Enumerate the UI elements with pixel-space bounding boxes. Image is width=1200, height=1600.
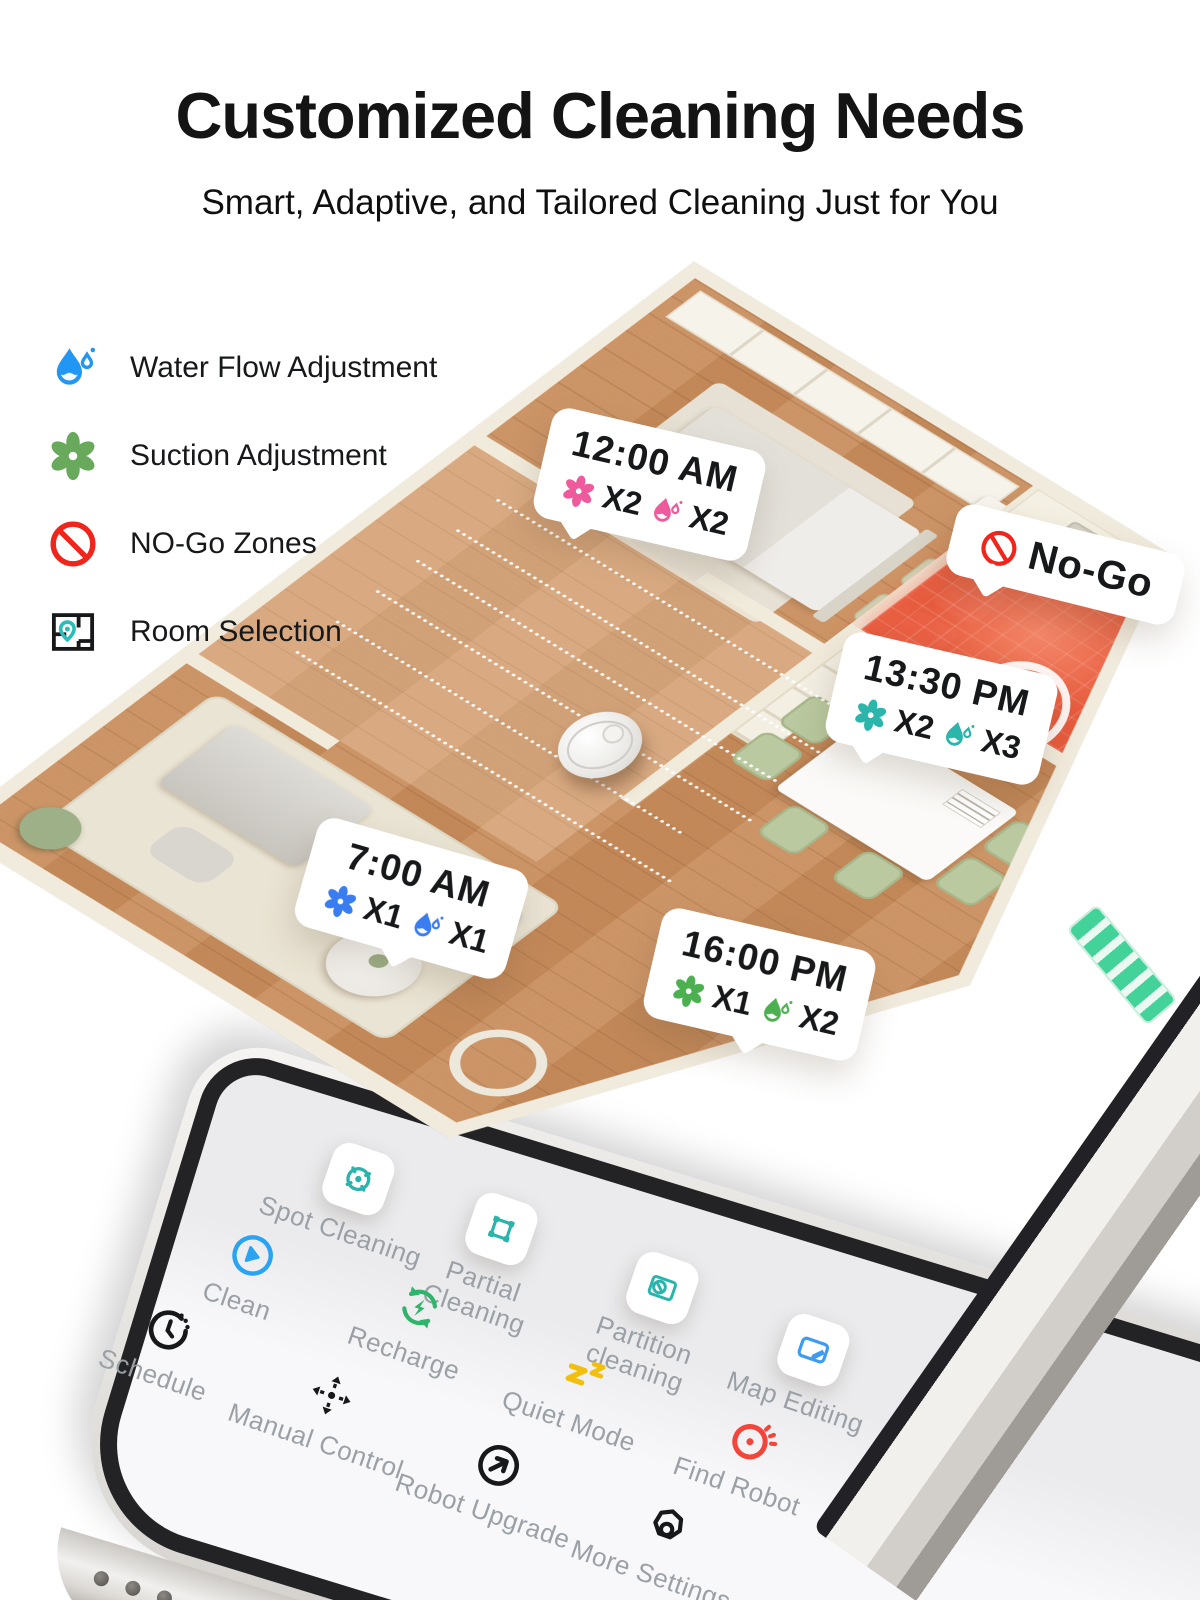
battery-indicator-strip bbox=[1066, 904, 1178, 1026]
water-drop-icon bbox=[46, 341, 100, 395]
speaker-hole bbox=[155, 1589, 174, 1600]
no-go-icon bbox=[974, 522, 1025, 573]
page-title: Customized Cleaning Needs bbox=[0, 78, 1200, 153]
legend-label: Water Flow Adjustment bbox=[130, 351, 437, 385]
legend-label: NO-Go Zones bbox=[130, 527, 317, 561]
room-selection-icon bbox=[46, 605, 100, 659]
legend-item-water-flow: Water Flow Adjustment bbox=[46, 338, 437, 398]
legend-item-no-go: NO-Go Zones bbox=[46, 514, 437, 574]
page-subtitle: Smart, Adaptive, and Tailored Cleaning J… bbox=[0, 183, 1200, 223]
legend-item-suction: Suction Adjustment bbox=[46, 426, 437, 486]
suction-fan-icon bbox=[667, 969, 710, 1012]
page: Customized Cleaning Needs Smart, Adaptiv… bbox=[0, 0, 1200, 1600]
speaker-hole bbox=[124, 1579, 143, 1598]
legend-label: Suction Adjustment bbox=[130, 439, 387, 473]
no-go-icon bbox=[46, 517, 100, 571]
speaker-hole bbox=[92, 1569, 111, 1588]
suction-fan-icon bbox=[318, 879, 363, 924]
water-drop-icon bbox=[754, 989, 797, 1032]
header: Customized Cleaning Needs Smart, Adaptiv… bbox=[0, 78, 1200, 223]
legend-item-room-selection: Room Selection bbox=[46, 602, 437, 662]
suction-fan-icon bbox=[46, 429, 100, 483]
water-drop-icon bbox=[404, 903, 449, 948]
water-drop-icon bbox=[644, 489, 687, 532]
feature-legend: Water Flow Adjustment Suction Adjustment… bbox=[46, 338, 437, 690]
legend-label: Room Selection bbox=[130, 615, 342, 649]
water-drop-icon bbox=[936, 713, 979, 756]
suction-fan-icon bbox=[849, 693, 892, 736]
suction-fan-icon bbox=[557, 469, 600, 512]
